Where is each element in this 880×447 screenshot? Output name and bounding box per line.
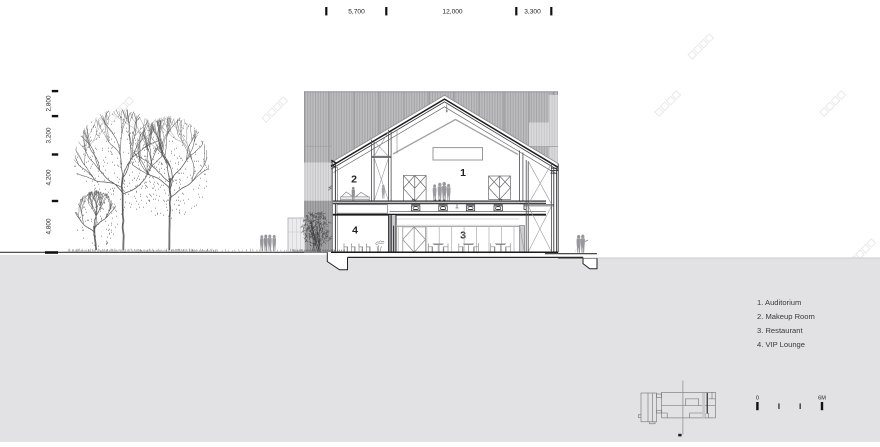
svg-text:2. Makeup Room: 2. Makeup Room — [757, 312, 815, 321]
svg-text:3. Restaurant: 3. Restaurant — [757, 326, 803, 335]
svg-text:3: 3 — [460, 230, 466, 242]
svg-text:4,800: 4,800 — [46, 218, 53, 234]
svg-text:1. Auditorium: 1. Auditorium — [757, 298, 801, 307]
svg-text:12,000: 12,000 — [442, 9, 463, 16]
svg-text:1: 1 — [460, 167, 466, 179]
svg-text:0: 0 — [756, 396, 759, 402]
svg-text:4,200: 4,200 — [46, 169, 53, 185]
svg-text:4. VIP Lounge: 4. VIP Lounge — [757, 340, 805, 349]
svg-text:4: 4 — [352, 225, 358, 237]
svg-text:3,300: 3,300 — [524, 9, 541, 16]
svg-text:3,200: 3,200 — [46, 127, 53, 143]
svg-text:2,800: 2,800 — [46, 95, 53, 111]
svg-text:2: 2 — [351, 174, 357, 186]
svg-text:6M: 6M — [818, 396, 826, 402]
svg-text:5,700: 5,700 — [348, 9, 365, 16]
